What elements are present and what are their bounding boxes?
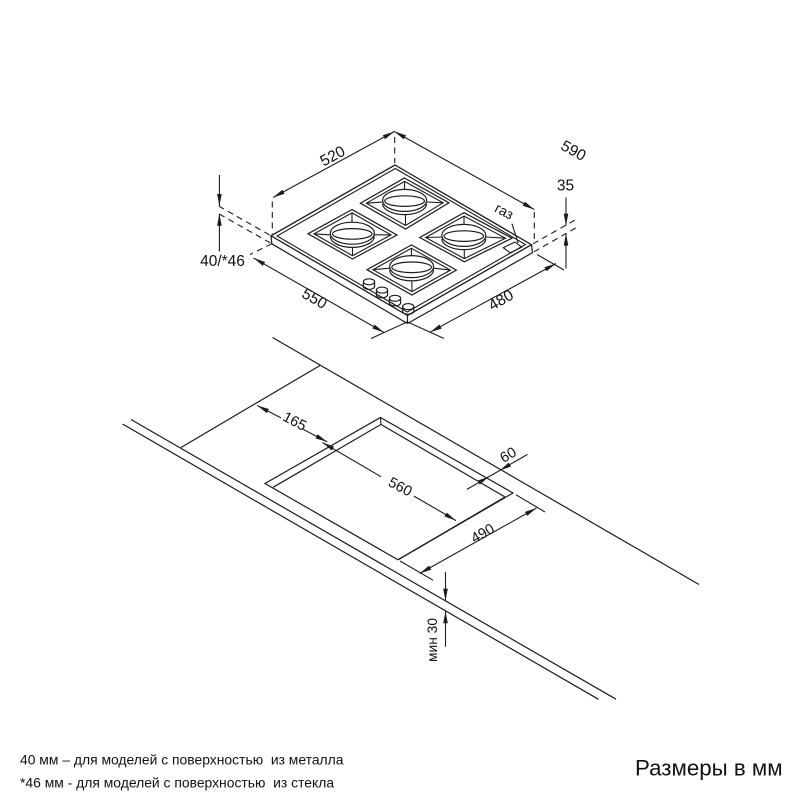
svg-text:Размеры в мм: Размеры в мм [635, 756, 783, 781]
svg-text:35: 35 [557, 178, 574, 195]
svg-text:40 мм – для моделей с поверхно: 40 мм – для моделей с поверхностью из ме… [20, 752, 344, 768]
svg-text:40/*46: 40/*46 [200, 253, 245, 270]
svg-text:мин 30: мин 30 [425, 618, 440, 662]
svg-text:*46 мм - для моделей с поверхн: *46 мм - для моделей с поверхностью из с… [20, 775, 334, 791]
